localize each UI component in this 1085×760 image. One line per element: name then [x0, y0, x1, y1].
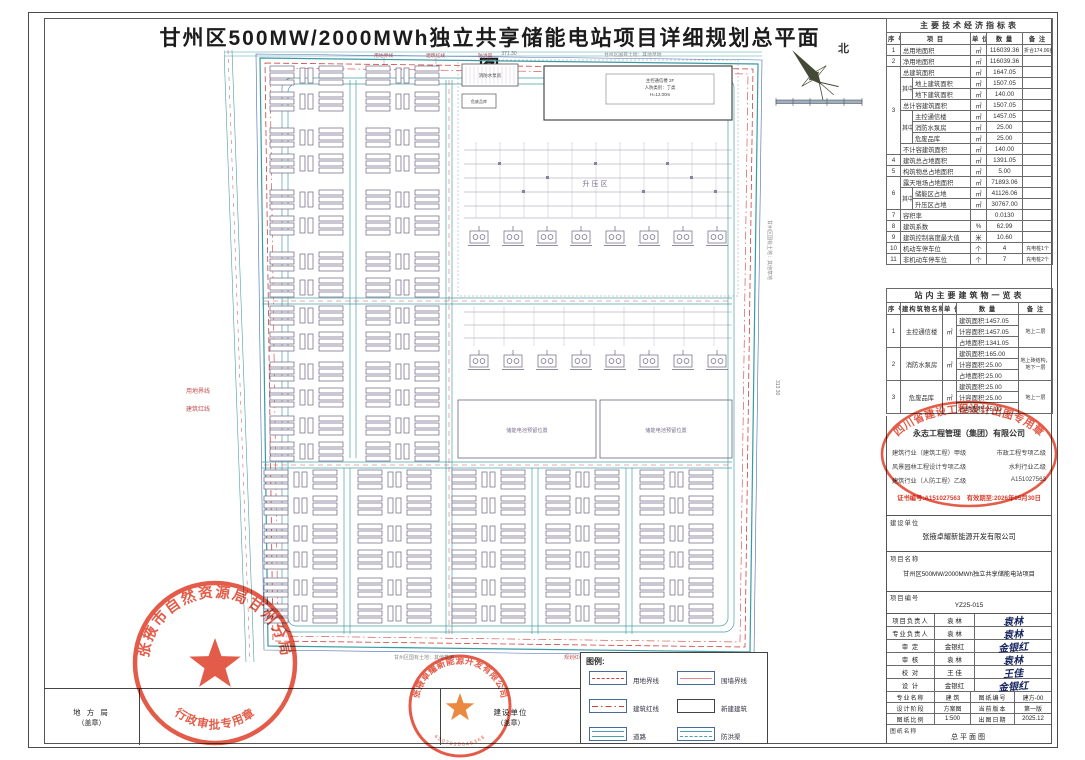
- stamp2-arc-text: 张掖卓耀新能源开发有限公司: [411, 654, 510, 699]
- legend-swatch-red-line: [589, 699, 627, 713]
- svg-text:313.30: 313.30: [774, 380, 780, 396]
- svg-text:张掖卓耀新能源开发有限公司: 张掖卓耀新能源开发有限公司: [411, 654, 510, 699]
- transformer-row-2: [468, 350, 728, 370]
- signature-rows: 项目负责人袁 林袁林 专业负责人袁 林袁林 审 定金银红金银红 审 核袁 林袁林…: [886, 614, 1052, 744]
- project-no-label: 项目编号: [887, 592, 1051, 602]
- reserved-area-2: 储能电池预留位置: [600, 400, 732, 458]
- svg-text:储能电池预留位置: 储能电池预留位置: [645, 426, 687, 434]
- owner-block: 建设单位 张掖卓耀新能源开发有限公司: [886, 516, 1052, 552]
- project-no-block: 项目编号 YZ25-015: [886, 592, 1052, 614]
- svg-text:升压区: 升压区: [583, 179, 610, 188]
- svg-text:消防水泵房: 消防水泵房: [479, 72, 502, 79]
- drawing-sheet: 甘州区500MW/2000MWh独立共享储能电站项目详细规划总平面图: [0, 0, 1085, 760]
- row-scale-date: 图纸比例1:500出图日期2025.12: [887, 714, 1051, 725]
- svg-text:建筑红线: 建筑红线: [426, 52, 445, 59]
- legend: 图例: 用地界线 围墙界线 建筑红线 新建建筑 道路 防洪渠: [580, 652, 768, 744]
- legend-label: 新建建筑: [721, 703, 747, 713]
- legend-swatch-land-boundary: [589, 671, 627, 685]
- indicators-table: 主要技术经济指标表 序 号项 目 单 位数 量备 注 1总用地面积㎡116039…: [886, 18, 1052, 265]
- svg-text:主控通信楼 2F: 主控通信楼 2F: [646, 77, 675, 84]
- legend-swatch-wall-boundary: [677, 671, 715, 685]
- project-name-label: 项目名称: [887, 552, 1051, 563]
- legend-swatch-flood-channel: [677, 727, 715, 741]
- row-major-dwgno: 专业名称建 筑图纸编号建方-00: [887, 692, 1051, 703]
- owner-label: 建设单位: [887, 516, 1051, 527]
- project-no: YZ25-015: [887, 602, 1051, 609]
- project-name-block: 项目名称 甘州区500MW/2000MWh独立共享储能电站项目: [886, 552, 1052, 592]
- oval-stamp-text: 四川省建设工程设计出图专用章: [892, 402, 1047, 439]
- row-designer: 设 计金银红金银红: [887, 679, 1051, 692]
- local-bureau-label: 地 方 局: [73, 707, 110, 718]
- left-boundary-label-2: 建筑红线: [186, 404, 210, 413]
- substation-bay: 升压区: [464, 142, 732, 218]
- svg-text:储能电池预留位置: 储能电池预留位置: [506, 426, 548, 434]
- local-bureau-sub: （盖章）: [78, 718, 106, 728]
- road-centerline: [228, 50, 250, 662]
- svg-text:危废品库: 危废品库: [471, 98, 487, 104]
- legend-swatch-new-building: [677, 699, 715, 713]
- scale-bar: [776, 98, 862, 106]
- left-boundary-label-1: 用地界线: [186, 386, 210, 395]
- svg-text:防洪渠: 防洪渠: [478, 52, 493, 59]
- svg-text:H=12.00m: H=12.00m: [650, 92, 671, 97]
- owner-name: 张掖卓耀新能源开发有限公司: [887, 532, 1051, 542]
- legend-swatch-road: [589, 727, 627, 741]
- svg-text:用地界线: 用地界线: [374, 52, 393, 59]
- battery-cluster-grid: [264, 66, 713, 623]
- company-stamp: 张掖卓耀新能源开发有限公司 6207020045368: [404, 650, 516, 760]
- design-certificate-stamp: 四川省建设工程设计出图专用章: [878, 396, 1060, 516]
- transformer-row-1: [468, 226, 728, 246]
- svg-text:行政审批专用章: 行政审批专用章: [172, 705, 258, 732]
- row-drawing-name: 图纸名称 总平面图: [887, 725, 1051, 744]
- svg-text:甘州区国有土地：其他草地: 甘州区国有土地：其他草地: [766, 220, 773, 280]
- stamp1-star: [189, 638, 240, 687]
- project-name: 甘州区500MW/2000MWh独立共享储能电站项目: [887, 569, 1051, 578]
- north-label: 北: [838, 41, 849, 55]
- legend-label: 用地界线: [633, 675, 659, 685]
- compass-needle: [780, 40, 844, 107]
- stamp2-star: [446, 693, 475, 720]
- legend-title: 图例:: [586, 656, 605, 667]
- svg-text:四川省建设工程设计出图专用章: 四川省建设工程设计出图专用章: [892, 402, 1047, 439]
- site-plan: 消防水泵房 危废品库 主控通信楼 2F 人防类别：丁类 H=12.00m 升压区: [224, 50, 780, 664]
- svg-text:甘州区国有土地：其他草地: 甘州区国有土地：其他草地: [604, 51, 662, 58]
- fire-pump-house: 消防水泵房: [462, 64, 518, 86]
- approval-stamp: 张掖市自然资源局甘州分局 行政审批专用章: [126, 574, 304, 752]
- stamp2-number: 6207020045368: [433, 734, 487, 748]
- reserved-area-1: 储能电池预留位置: [458, 400, 596, 458]
- main-control-building: 主控通信楼 2F 人防类别：丁类 H=12.00m: [544, 66, 732, 120]
- drawing-name-label: 图纸名称: [890, 726, 917, 735]
- row-stage-version: 设计阶段方案图当前版本第一版: [887, 703, 1051, 714]
- svg-text:371.30: 371.30: [501, 51, 517, 57]
- north-compass: 北: [772, 36, 872, 120]
- substation-bay-2: [464, 306, 732, 346]
- legend-label: 围墙界线: [721, 675, 747, 685]
- svg-text:人防类别：丁类: 人防类别：丁类: [645, 84, 676, 91]
- legend-label: 防洪渠: [721, 731, 741, 741]
- stamp1-bottom-text: 行政审批专用章: [172, 705, 258, 732]
- legend-label: 建筑红线: [633, 703, 659, 713]
- hazard-store: 危废品库: [462, 94, 496, 108]
- legend-label: 道路: [633, 731, 646, 741]
- svg-text:6207020045368: 6207020045368: [433, 734, 487, 748]
